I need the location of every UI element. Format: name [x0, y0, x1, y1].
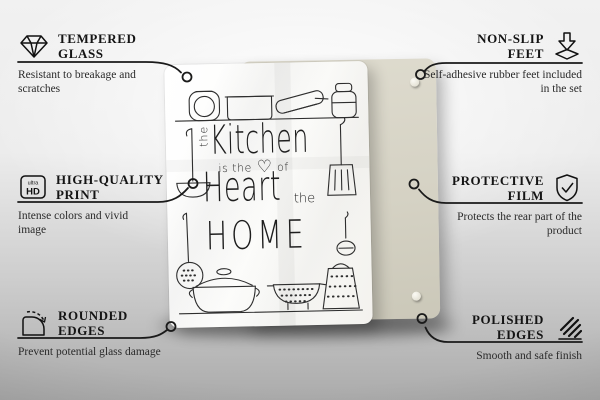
quote-word-kitchen: Kitchen	[209, 119, 309, 161]
ultra-hd-icon: ultra HD	[18, 173, 48, 201]
quote-word-the: the	[198, 135, 209, 147]
shield-check-icon	[552, 172, 582, 204]
casserole-illustration	[189, 268, 260, 313]
callout-description: Resistant to breakage and scratches	[18, 68, 153, 96]
callout-protective-film: PROTECTIVE FILM Protects the rear part o…	[402, 172, 582, 238]
quote-word-home: HOME	[205, 216, 307, 257]
callout-description: Prevent potential glass damage	[18, 345, 228, 359]
ultra-hd-icon-text-bottom: HD	[26, 187, 40, 198]
callout-description: Protects the rear part of the product	[457, 210, 582, 238]
callout-description: Intense colors and vivid image	[18, 209, 133, 237]
callout-title: HIGH-QUALITY PRINT	[56, 172, 170, 202]
callout-title: ROUNDED EDGES	[58, 308, 150, 338]
callout-title: POLISHED EDGES	[452, 312, 544, 342]
spice-jar-illustration	[332, 83, 357, 118]
product-infographic: the Kitchen is the ♡ of Heart the HOME	[0, 0, 600, 400]
rubber-foot	[412, 292, 421, 301]
grater-illustration	[322, 263, 359, 308]
quote-word-the2: the	[294, 192, 316, 205]
slicer-illustration	[275, 88, 329, 114]
quote-word-heart: Heart	[202, 166, 281, 209]
callout-description: Smooth and safe finish	[412, 349, 582, 363]
hatch-stripes-icon	[552, 312, 582, 342]
diamond-icon	[18, 31, 50, 61]
rounded-corner-icon	[18, 308, 50, 338]
press-down-icon	[552, 30, 582, 62]
callout-rounded-edges: ROUNDED EDGES Prevent potential glass da…	[18, 307, 238, 359]
callout-polished-edges: POLISHED EDGES Smooth and safe finish	[392, 311, 582, 363]
quote-text: the Kitchen is the ♡ of Heart the HOME	[192, 123, 347, 248]
callout-title: TEMPERED GLASS	[58, 31, 153, 61]
callout-title: NON-SLIP FEET	[462, 31, 544, 61]
glass-board: the Kitchen is the ♡ of Heart the HOME	[164, 61, 372, 328]
callout-high-quality-print: ultra HD HIGH-QUALITY PRINT Intense colo…	[18, 171, 188, 237]
callout-tempered-glass: TEMPERED GLASS Resistant to breakage and…	[18, 30, 188, 96]
callout-non-slip-feet: NON-SLIP FEET Self-adhesive rubber feet …	[402, 30, 582, 96]
colander-illustration	[267, 284, 326, 310]
callout-description: Self-adhesive rubber feet included in th…	[417, 68, 582, 96]
callout-title: PROTECTIVE FILM	[444, 173, 544, 203]
